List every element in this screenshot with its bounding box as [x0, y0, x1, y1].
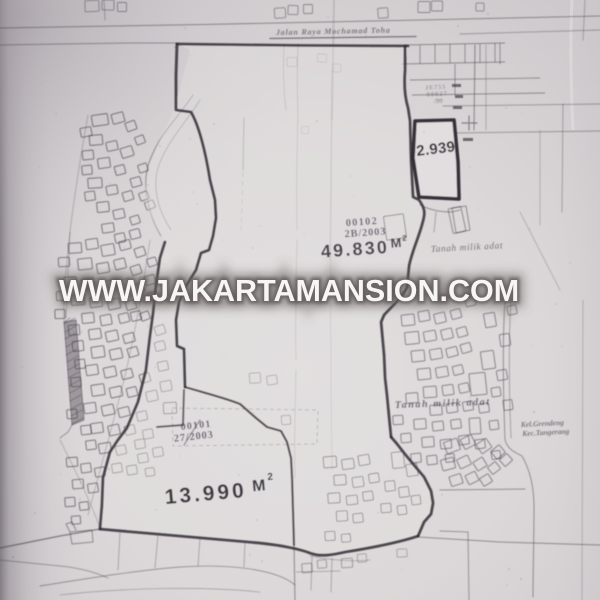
svg-text:M: M [251, 477, 266, 495]
svg-text:/99: /99 [433, 98, 443, 106]
svg-text:M: M [390, 235, 402, 251]
svg-text:WWW.JAKARTAMANSION.COM: WWW.JAKARTAMANSION.COM [59, 274, 519, 308]
